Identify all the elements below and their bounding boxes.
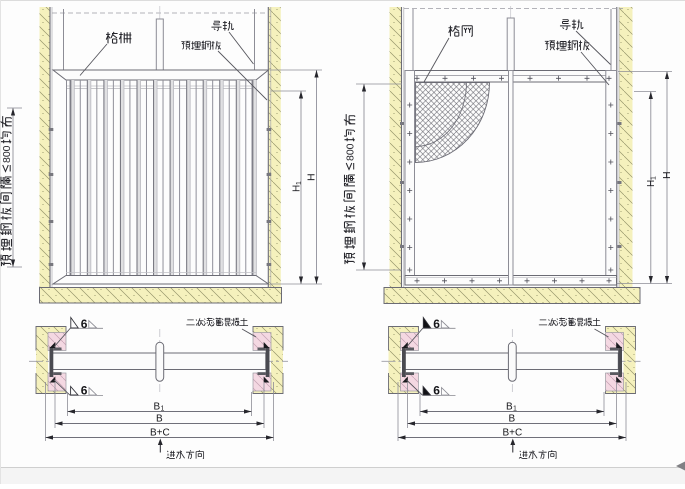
- svg-text:B: B: [156, 414, 163, 425]
- svg-text:B+C: B+C: [150, 428, 170, 439]
- svg-text:6: 6: [433, 384, 440, 398]
- svg-text:H: H: [306, 173, 318, 181]
- svg-text:H: H: [661, 171, 673, 179]
- svg-text:6: 6: [81, 317, 88, 331]
- svg-text:B: B: [506, 402, 513, 413]
- svg-text:6: 6: [81, 384, 88, 398]
- svg-text:B+C: B+C: [503, 428, 523, 439]
- svg-text:1: 1: [513, 406, 517, 413]
- svg-text:1: 1: [161, 406, 165, 413]
- svg-text:800: 800: [345, 143, 357, 161]
- svg-text:1: 1: [650, 176, 657, 180]
- svg-text:B: B: [509, 414, 516, 425]
- svg-text:800: 800: [1, 145, 13, 163]
- svg-text:1: 1: [296, 181, 303, 185]
- svg-text:6: 6: [433, 317, 440, 331]
- svg-text:B: B: [154, 402, 161, 413]
